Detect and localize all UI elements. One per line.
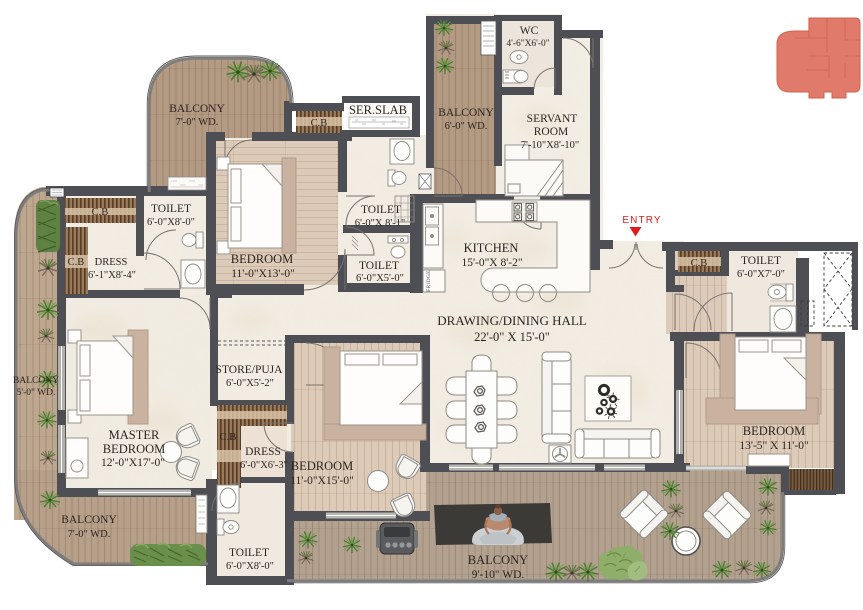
svg-text:BALCONY: BALCONY: [13, 376, 59, 386]
svg-text:6'-0"X5'-2": 6'-0"X5'-2": [226, 378, 274, 389]
svg-text:C.B: C.B: [92, 207, 109, 218]
svg-text:6'-0"X 8'-1": 6'-0"X 8'-1": [355, 218, 406, 229]
svg-text:9'-10" WD.: 9'-10" WD.: [472, 569, 525, 581]
svg-text:DRESS: DRESS: [95, 257, 128, 268]
svg-text:BEDROOM: BEDROOM: [291, 459, 354, 473]
svg-text:SER.SLAB: SER.SLAB: [349, 103, 407, 117]
svg-text:TOILET: TOILET: [741, 255, 781, 267]
svg-text:BEDROOM: BEDROOM: [231, 252, 294, 266]
svg-text:C.B: C.B: [68, 257, 85, 268]
svg-text:7'-0" WD.: 7'-0" WD.: [68, 529, 111, 540]
svg-text:STORE/PUJA: STORE/PUJA: [216, 364, 284, 376]
svg-text:BEDROOM: BEDROOM: [743, 424, 806, 438]
svg-text:C.B: C.B: [311, 118, 328, 129]
svg-text:BEDROOM: BEDROOM: [103, 442, 166, 456]
svg-text:BALCONY: BALCONY: [61, 514, 117, 526]
svg-text:12'-0"X17'-0": 12'-0"X17'-0": [101, 457, 165, 469]
svg-text:WC: WC: [520, 25, 539, 37]
svg-text:6'-0"X8'-0": 6'-0"X8'-0": [226, 561, 274, 572]
svg-text:6'-0"X7'-0": 6'-0"X7'-0": [737, 269, 785, 280]
svg-text:6'-1"X8'-4": 6'-1"X8'-4": [88, 270, 136, 281]
svg-text:ROOM: ROOM: [534, 126, 569, 138]
svg-text:MASTER: MASTER: [109, 428, 160, 442]
svg-text:BALCONY: BALCONY: [468, 553, 528, 567]
svg-text:KITCHEN: KITCHEN: [464, 241, 519, 255]
svg-text:4'-6"X6'-0": 4'-6"X6'-0": [506, 39, 549, 49]
svg-text:DRESS: DRESS: [245, 446, 281, 458]
svg-text:TOILET: TOILET: [229, 547, 269, 559]
svg-text:6'-0" WD.: 6'-0" WD.: [445, 121, 488, 132]
svg-text:6'-0"X8'-0": 6'-0"X8'-0": [147, 217, 195, 228]
svg-text:6'-0"X5'-0": 6'-0"X5'-0": [356, 273, 404, 284]
svg-text:7'-10"X8'-10": 7'-10"X8'-10": [521, 140, 579, 151]
svg-text:C.B: C.B: [220, 432, 237, 443]
svg-text:7'-0" WD.: 7'-0" WD.: [176, 117, 219, 128]
svg-text:11'-0"X13'-0": 11'-0"X13'-0": [231, 268, 295, 280]
svg-text:TOILET: TOILET: [151, 203, 191, 215]
svg-text:FRIDGE: FRIDGE: [426, 270, 432, 292]
svg-text:SERVANT: SERVANT: [527, 113, 578, 125]
svg-text:C.B: C.B: [691, 258, 708, 269]
svg-text:ENTRY: ENTRY: [622, 215, 661, 226]
svg-text:BALCONY: BALCONY: [169, 103, 225, 115]
svg-text:TOILET: TOILET: [359, 260, 399, 272]
svg-text:TOILET: TOILET: [361, 204, 401, 216]
svg-text:5'-0" WD.: 5'-0" WD.: [17, 388, 56, 398]
svg-text:15'-0"X 8'-2": 15'-0"X 8'-2": [461, 257, 522, 269]
svg-text:DRAWING/DINING HALL: DRAWING/DINING HALL: [437, 313, 587, 328]
svg-text:11'-0"X15'-0": 11'-0"X15'-0": [290, 475, 354, 487]
svg-text:22'-0" X 15'-0": 22'-0" X 15'-0": [474, 330, 550, 344]
svg-text:6'-0"X6'-3": 6'-0"X6'-3": [240, 460, 288, 471]
svg-text:BALCONY: BALCONY: [438, 107, 494, 119]
svg-text:13'-5" X 11'-0": 13'-5" X 11'-0": [739, 440, 808, 452]
